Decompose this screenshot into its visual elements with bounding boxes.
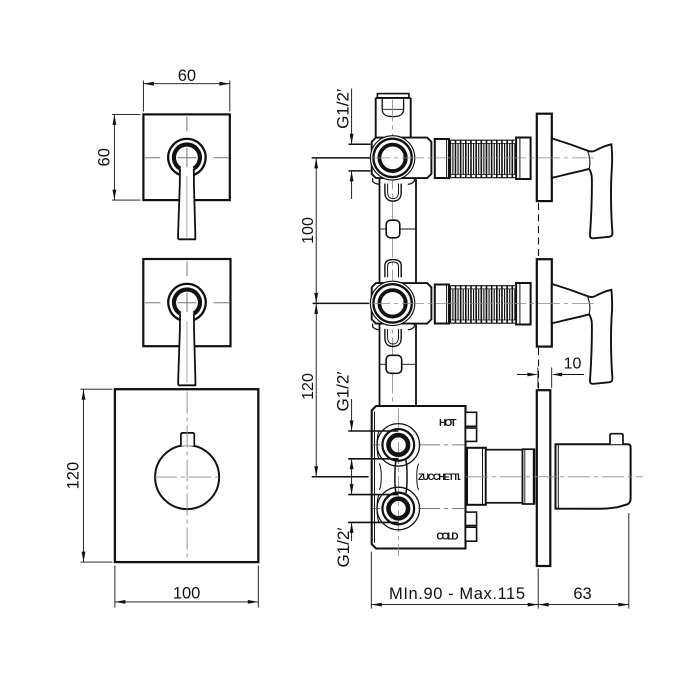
svg-text:HOT: HOT [439,418,457,429]
svg-text:COLD: COLD [436,532,458,543]
svg-text:ZUCCHETTI.: ZUCCHETTI. [418,472,461,482]
svg-text:G1/2′: G1/2′ [334,527,353,567]
svg-text:G1/2′: G1/2′ [334,371,353,411]
svg-text:120: 120 [65,462,83,490]
svg-text:MIn.90 - Max.115: MIn.90 - Max.115 [389,585,525,603]
svg-text:10: 10 [564,356,582,373]
svg-text:60: 60 [178,67,196,85]
svg-text:100: 100 [300,217,317,244]
svg-text:60: 60 [96,148,114,166]
svg-text:G1/2′: G1/2′ [334,89,353,129]
svg-text:63: 63 [573,585,591,603]
svg-text:120: 120 [300,373,317,400]
svg-text:100: 100 [173,584,201,602]
